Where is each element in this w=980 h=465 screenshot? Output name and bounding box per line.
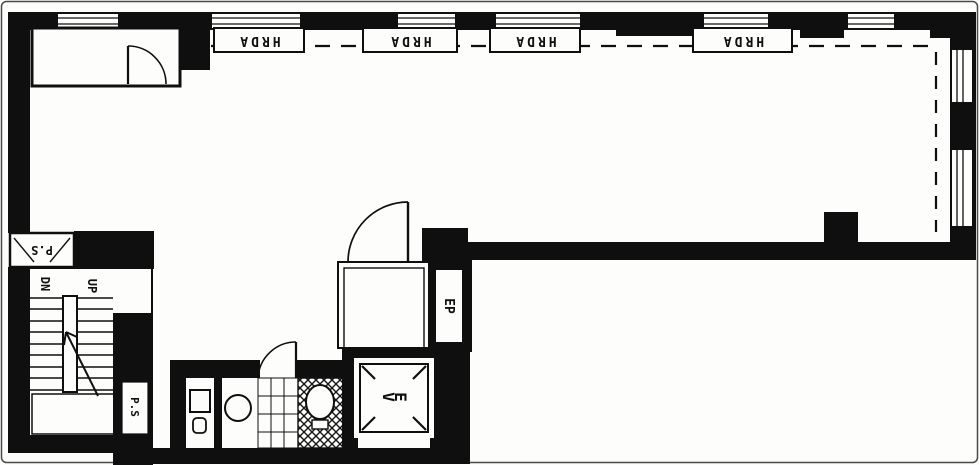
tile-floor [258, 378, 298, 448]
door-arc-lobby [348, 202, 408, 262]
perimeter-unit-label-2: HRDA [365, 29, 455, 52]
top-left-room [32, 28, 180, 86]
door-arc-wc [258, 342, 296, 378]
electrical-panel-label: EP [442, 291, 456, 321]
pipe-shaft-lower-label: P.S [128, 392, 142, 422]
perimeter-unit-label-1: HRDA [216, 29, 302, 52]
floor-plan-drawing [0, 0, 980, 465]
sink-basin [225, 395, 251, 421]
perimeter-unit-label-4: HRDA [695, 29, 790, 52]
perimeter-unit-label-3: HRDA [492, 29, 578, 52]
column [824, 212, 858, 244]
elevator-lobby [338, 202, 430, 348]
elevator-label: VE [374, 387, 414, 407]
right-exterior-wall [950, 12, 976, 260]
main-room-bottom-wall [422, 212, 956, 264]
stair-down-label: DN [36, 272, 54, 296]
pipe-shaft-label: P.S [12, 236, 72, 264]
dashed-datum-line [185, 46, 936, 232]
stair-up-label: UP [83, 274, 101, 298]
floor-plan: HRDA HRDA HRDA HRDA P.S DN UP P.S EP VE [0, 0, 980, 465]
toilet-fixture [306, 385, 334, 419]
